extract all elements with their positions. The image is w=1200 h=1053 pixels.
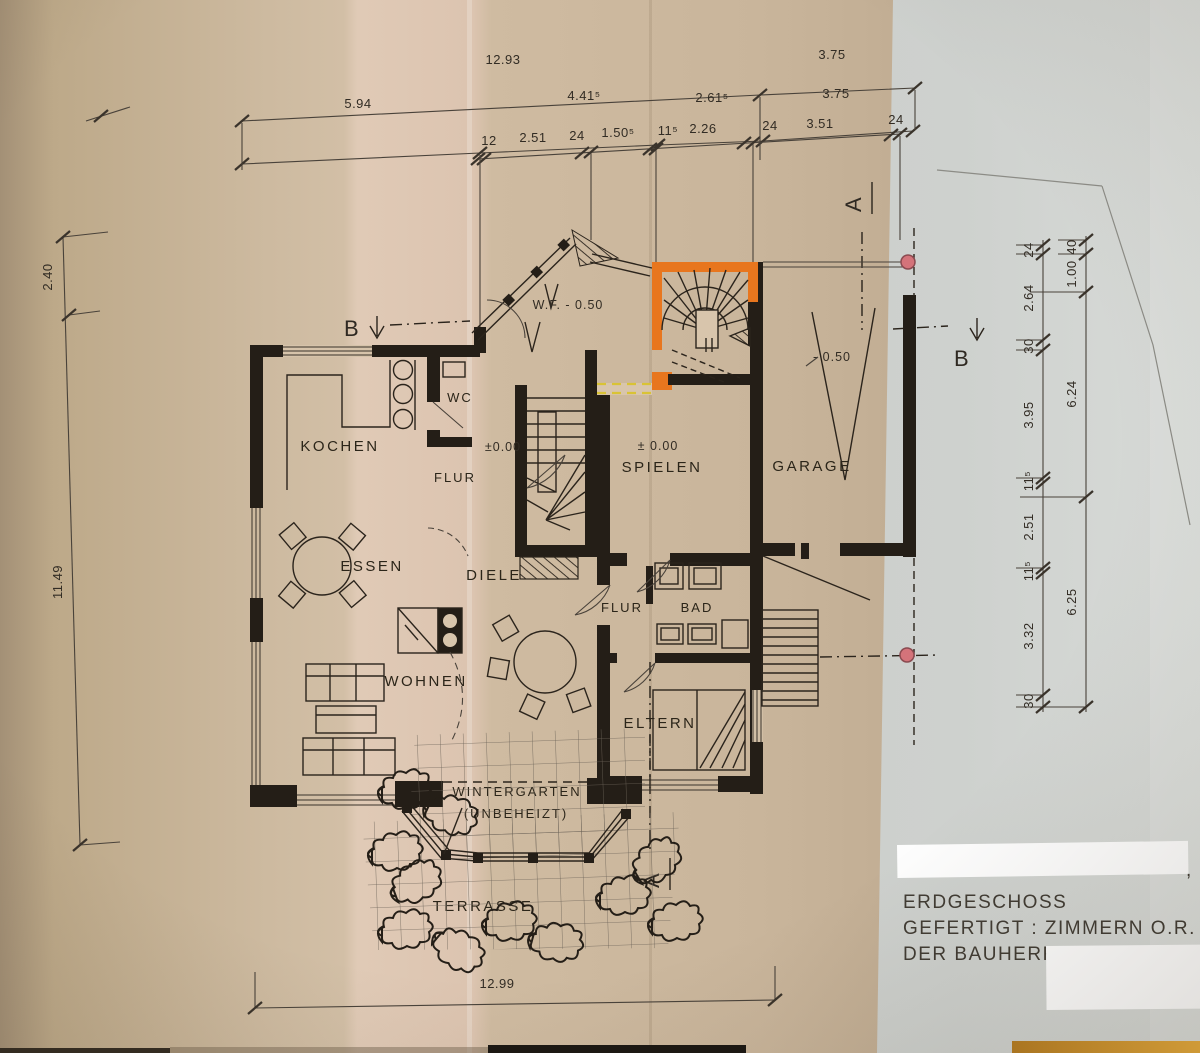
photo-edges bbox=[0, 0, 1200, 1053]
photographed-floor-plan: 12.93 3.75 5.94 4.41⁵ 2.61⁵ 3.75 12 2.51… bbox=[0, 0, 1200, 1053]
floor-plan-drawing: 12.93 3.75 5.94 4.41⁵ 2.61⁵ 3.75 12 2.51… bbox=[0, 0, 1200, 1053]
vignette bbox=[0, 0, 1200, 1053]
